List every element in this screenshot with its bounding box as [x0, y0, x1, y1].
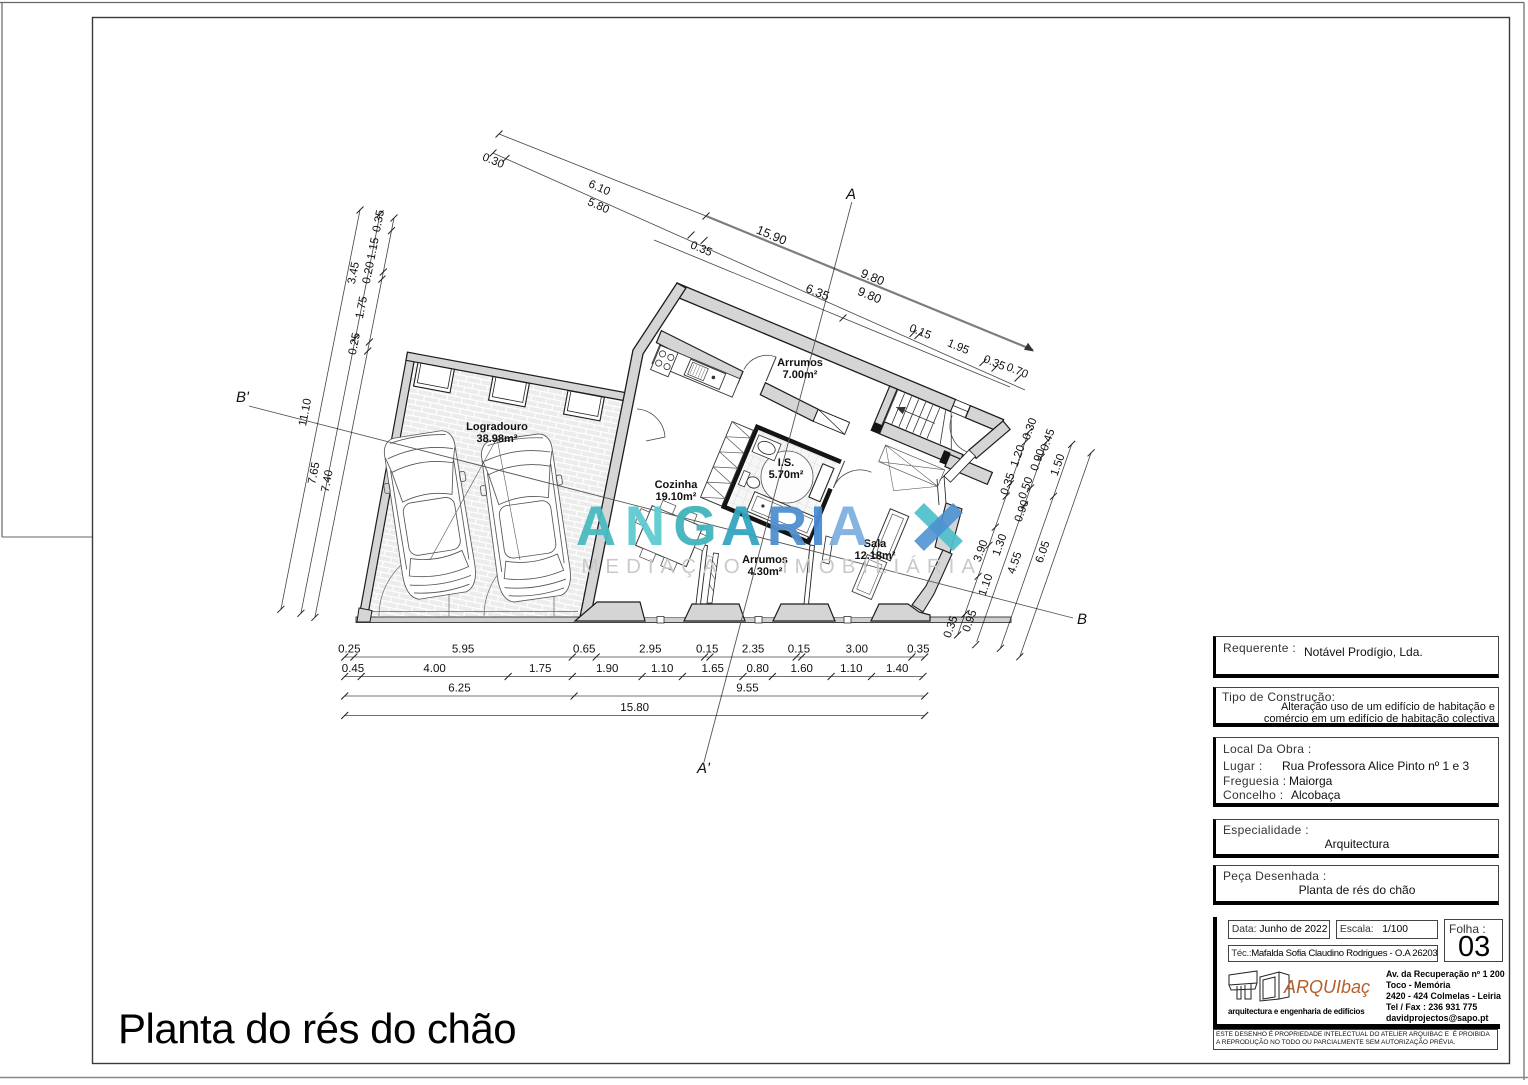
svg-text:B: B [1077, 611, 1087, 628]
svg-text:A: A [845, 186, 856, 203]
svg-text:1.10: 1.10 [651, 663, 673, 675]
svg-text:5.70m²: 5.70m² [769, 469, 804, 481]
svg-text:Cozinha: Cozinha [655, 479, 699, 491]
svg-text:I.S.: I.S. [778, 457, 795, 469]
svg-text:4.30m²: 4.30m² [748, 566, 783, 578]
svg-text:0.45: 0.45 [342, 663, 364, 675]
svg-text:15.80: 15.80 [620, 702, 649, 714]
svg-text:3.00: 3.00 [846, 644, 868, 656]
svg-text:2.35: 2.35 [742, 644, 764, 656]
svg-text:1.60: 1.60 [791, 663, 813, 675]
svg-text:2.95: 2.95 [639, 644, 661, 656]
svg-text:A: A [828, 494, 868, 557]
svg-text:1.65: 1.65 [702, 663, 724, 675]
svg-text:0.15: 0.15 [696, 644, 718, 656]
svg-text:0.80: 0.80 [747, 663, 769, 675]
svg-text:0.35: 0.35 [907, 644, 929, 656]
svg-text:1.10: 1.10 [840, 663, 862, 675]
svg-text:G: G [673, 494, 717, 557]
svg-text:I: I [810, 494, 826, 557]
svg-text:5.95: 5.95 [452, 644, 474, 656]
svg-text:N: N [625, 494, 665, 557]
svg-text:1.90: 1.90 [596, 663, 618, 675]
svg-text:Arrumos: Arrumos [777, 357, 823, 369]
svg-text:B': B' [236, 389, 250, 406]
svg-text:7.00m²: 7.00m² [783, 369, 818, 381]
svg-text:1.75: 1.75 [529, 663, 551, 675]
svg-text:4.00: 4.00 [423, 663, 445, 675]
svg-text:A: A [576, 494, 616, 557]
svg-text:1.40: 1.40 [886, 663, 908, 675]
svg-text:A': A' [696, 760, 711, 777]
svg-text:Logradouro: Logradouro [466, 421, 528, 433]
svg-text:38.98m²: 38.98m² [477, 433, 518, 445]
svg-text:A: A [721, 494, 761, 557]
svg-text:0.15: 0.15 [788, 644, 810, 656]
svg-text:R: R [767, 494, 807, 557]
svg-text:IMOBILIÁRIA: IMOBILIÁRIA [782, 555, 982, 578]
svg-text:9.55: 9.55 [736, 683, 758, 695]
svg-text:MEDIAÇÃO: MEDIAÇÃO [581, 555, 746, 578]
svg-text:0.65: 0.65 [573, 644, 595, 656]
svg-text:6.25: 6.25 [448, 683, 470, 695]
